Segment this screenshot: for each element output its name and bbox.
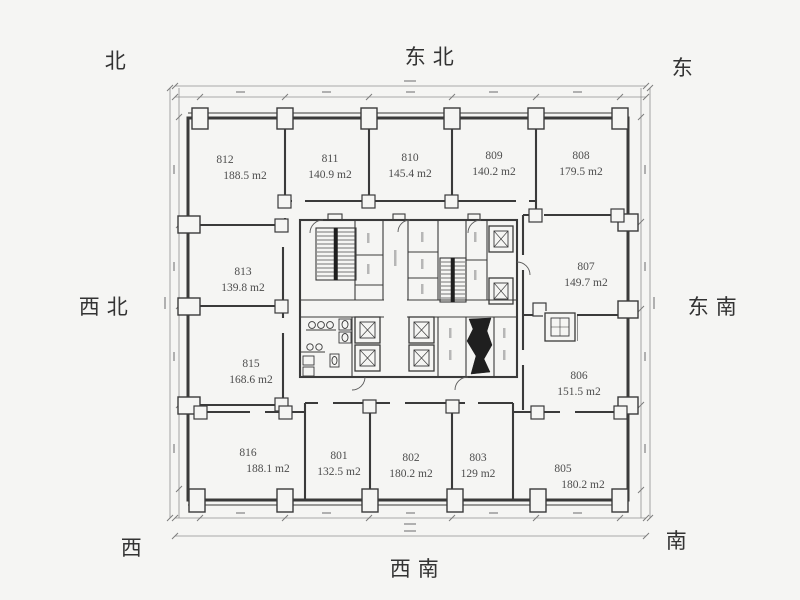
stair-west — [316, 228, 356, 280]
compass-label-southwest: 西南 — [386, 553, 446, 583]
room-area: 145.4 m2 — [388, 166, 431, 182]
room-area: 129 m2 — [461, 466, 496, 482]
room-number: 813 — [221, 264, 264, 280]
room-number: 802 — [389, 450, 432, 466]
room-area: 180.2 m2 — [561, 477, 604, 493]
room-area: 188.1 m2 — [246, 461, 289, 477]
room-label-807: 807 149.7 m2 — [564, 259, 607, 291]
room-number: 803 — [461, 450, 496, 466]
room-number: 801 — [317, 448, 360, 464]
room-number: 810 — [388, 150, 431, 166]
room-number: 808 — [559, 148, 602, 164]
stair-east — [440, 258, 466, 302]
washroom-fixtures — [300, 319, 351, 376]
room-label-815: 815 168.6 m2 — [229, 356, 272, 388]
room-number: 812 — [203, 152, 246, 168]
compass-label-west: 西 — [117, 532, 149, 562]
room-label-806: 806 151.5 m2 — [557, 368, 600, 400]
room-label-805: 805 180.2 m2 — [555, 461, 598, 493]
compass-label-south: 南 — [662, 525, 694, 555]
room-number: 815 — [229, 356, 272, 372]
room-area: 132.5 m2 — [317, 464, 360, 480]
compass-label-southeast: 东南 — [684, 291, 744, 321]
room-number: 809 — [472, 148, 515, 164]
room-label-802: 802 180.2 m2 — [389, 450, 432, 482]
room-area: 140.9 m2 — [308, 167, 351, 183]
stair-service-dark — [467, 318, 492, 374]
room-number: 816 — [226, 445, 269, 461]
room-label-816: 816 188.1 m2 — [240, 445, 283, 477]
room-label-803: 803 129 m2 — [461, 450, 496, 482]
floorplan-page: 北 东北 东 西北 东南 西 西南 南 812 188.5 m2 811 140… — [0, 0, 800, 600]
room-area: 139.8 m2 — [221, 280, 264, 296]
room-area: 168.6 m2 — [229, 372, 272, 388]
room-label-813: 813 139.8 m2 — [221, 264, 264, 296]
room-label-801: 801 132.5 m2 — [317, 448, 360, 480]
room-label-810: 810 145.4 m2 — [388, 150, 431, 182]
room-number: 805 — [541, 461, 584, 477]
room-label-809: 809 140.2 m2 — [472, 148, 515, 180]
compass-label-northwest: 西北 — [75, 291, 135, 321]
room-label-812: 812 188.5 m2 — [217, 152, 260, 184]
room-label-808: 808 179.5 m2 — [559, 148, 602, 180]
room-area: 180.2 m2 — [389, 466, 432, 482]
room-label-811: 811 140.9 m2 — [308, 151, 351, 183]
room-number: 807 — [564, 259, 607, 275]
room-area: 188.5 m2 — [223, 168, 266, 184]
room-number: 806 — [557, 368, 600, 384]
compass-label-north: 北 — [101, 45, 133, 75]
compass-label-northeast: 东北 — [401, 41, 461, 71]
room-number: 811 — [308, 151, 351, 167]
room-area: 149.7 m2 — [564, 275, 607, 291]
room-area: 179.5 m2 — [559, 164, 602, 180]
compass-label-east: 东 — [668, 52, 700, 82]
door-arcs — [310, 220, 530, 390]
room-area: 140.2 m2 — [472, 164, 515, 180]
room-area: 151.5 m2 — [557, 384, 600, 400]
